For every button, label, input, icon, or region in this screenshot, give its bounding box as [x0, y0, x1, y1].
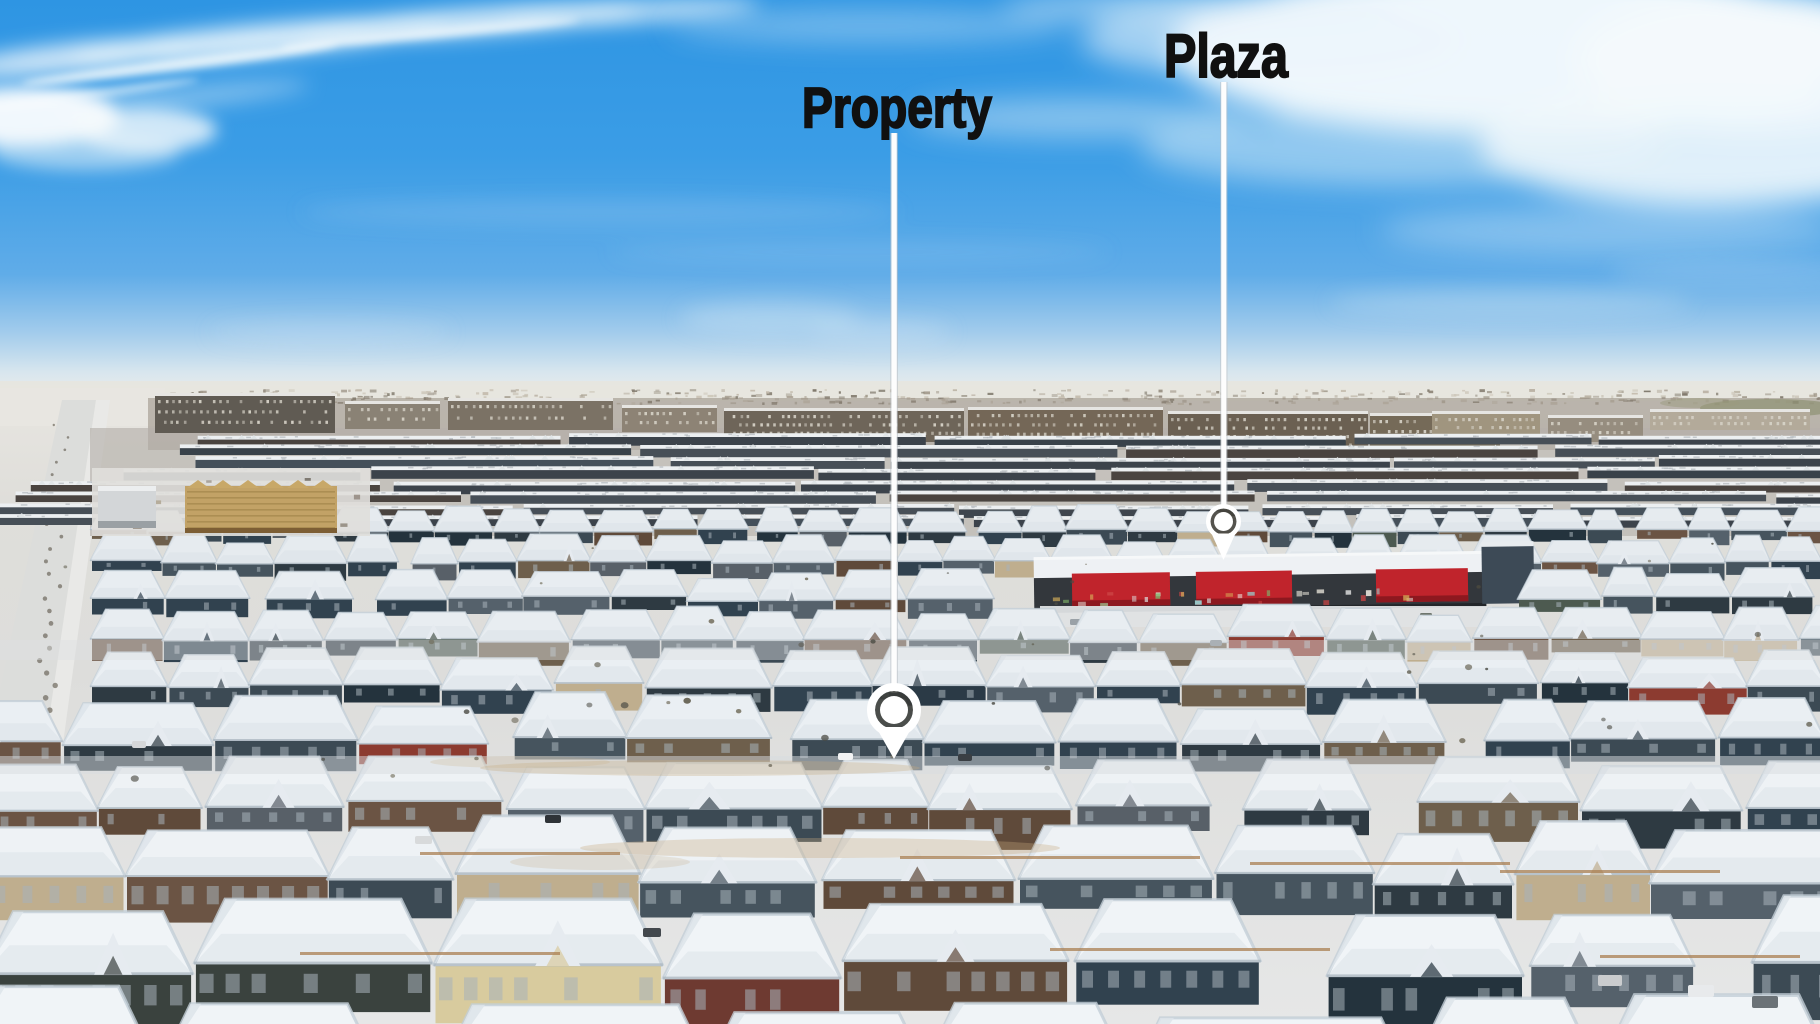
svg-text:Property: Property	[802, 76, 992, 140]
svg-text:Plaza: Plaza	[1164, 22, 1289, 90]
